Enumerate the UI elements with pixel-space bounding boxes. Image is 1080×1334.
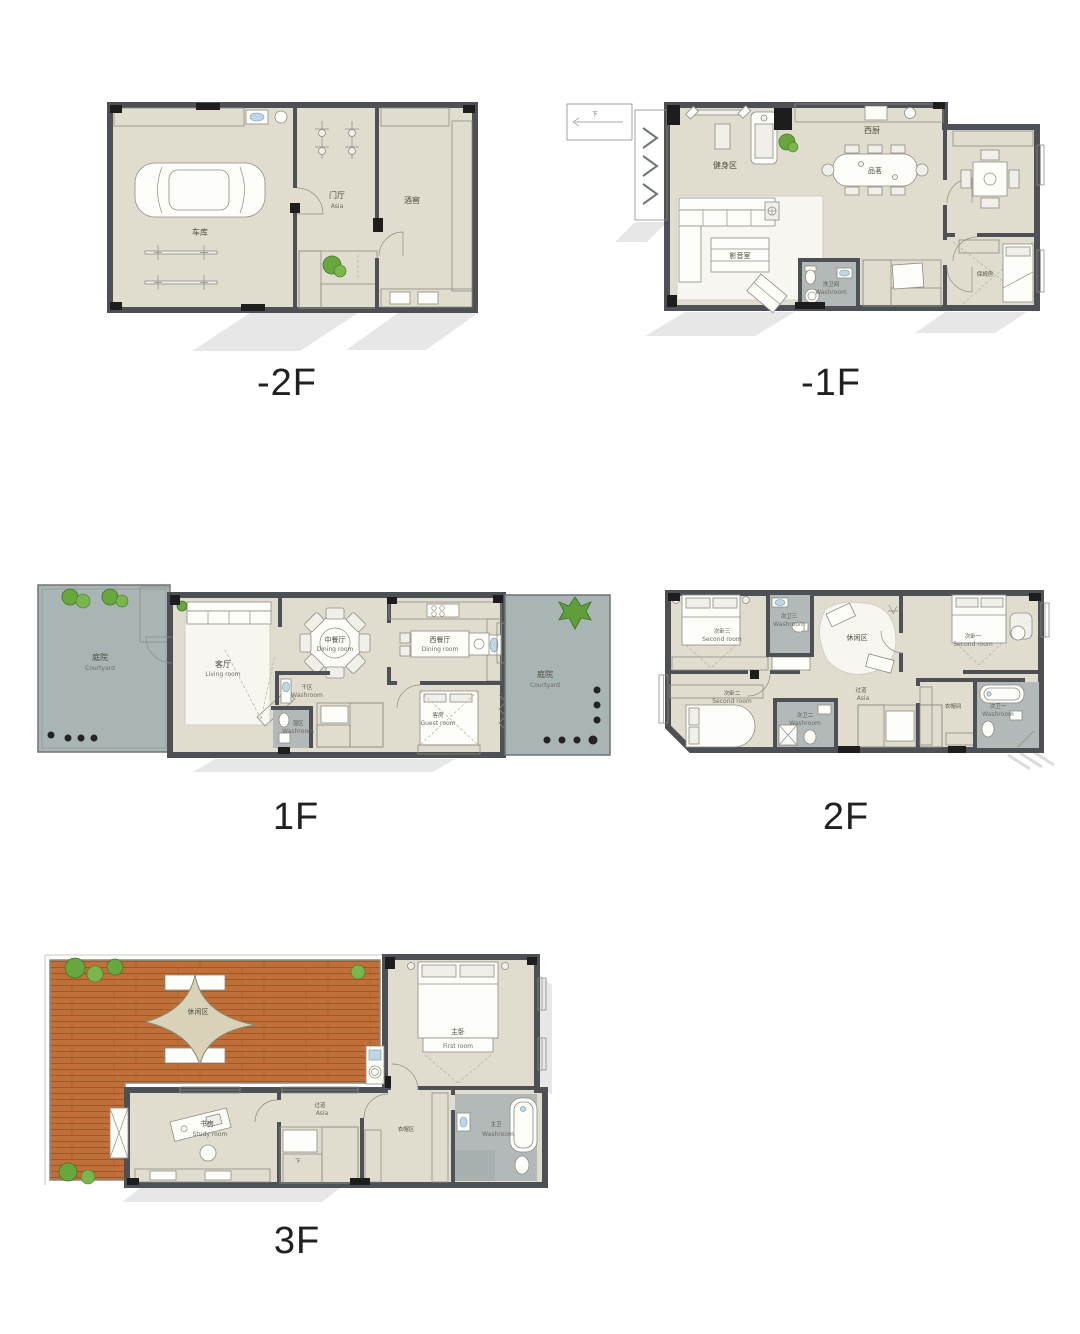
wine-cellar-label: 酒窖 xyxy=(404,195,420,205)
foyer-sublabel: Asia xyxy=(331,203,344,210)
wall-accent xyxy=(196,103,220,110)
toilet-icon xyxy=(982,721,994,737)
wall-accent xyxy=(385,957,395,969)
mbath-sublabel: Washroom xyxy=(482,1131,514,1138)
utility-sink-icon xyxy=(250,113,264,121)
bath2-sublabel: Washroom xyxy=(789,720,821,727)
interior-wall xyxy=(916,703,920,750)
plan-shadow xyxy=(615,222,667,242)
dining-cn-sublabel: Dining room xyxy=(317,646,354,653)
washroom-label: 洗卫间 xyxy=(823,280,840,288)
bed2-sublabel: Second room xyxy=(712,698,752,705)
stepping-stone xyxy=(91,735,98,742)
interior-wall xyxy=(947,233,955,237)
sofa-icon xyxy=(177,601,271,624)
wall-accent xyxy=(385,1076,391,1088)
plant-icon xyxy=(351,965,365,979)
wall-accent xyxy=(127,1178,139,1185)
terrace-label: 休闲区 xyxy=(188,1007,209,1016)
courtyard-right-sublabel: Courtyard xyxy=(530,682,560,689)
interior-wall xyxy=(977,233,1037,237)
wall-accent xyxy=(110,105,122,113)
bed3-label: 次卧三 xyxy=(714,627,731,635)
stepping-stone xyxy=(48,732,55,739)
toilet-icon xyxy=(805,266,816,284)
tea-label: 品茗 xyxy=(868,166,882,175)
desk-chair-icon xyxy=(1010,613,1032,640)
interior-wall xyxy=(375,105,379,218)
dry-washroom-label: 干区 xyxy=(301,684,313,691)
leisure-label: 休闲区 xyxy=(847,633,868,642)
bathtub-icon xyxy=(510,1098,537,1152)
interior-wall xyxy=(916,678,976,682)
interior-wall xyxy=(963,670,1041,674)
interior-wall xyxy=(360,1118,364,1183)
toilet-icon xyxy=(279,713,289,727)
floor-label-2f: 2F xyxy=(776,796,916,839)
stepping-stone xyxy=(574,737,581,744)
wall-accent xyxy=(527,957,537,965)
stepping-stone xyxy=(65,735,72,742)
foyer-label: 门厅 xyxy=(329,190,345,200)
toilet-icon xyxy=(515,1156,529,1174)
dining-w-sublabel: Dining room xyxy=(422,646,459,653)
stepping-stone xyxy=(594,702,601,709)
wall-accent xyxy=(463,105,475,113)
plan-shadow xyxy=(915,312,1027,333)
wall-accent xyxy=(110,302,122,310)
stepping-stone xyxy=(594,687,601,694)
treadmill-icon xyxy=(751,112,777,164)
floor-label-minus1: -1F xyxy=(761,362,901,405)
wall-accent xyxy=(1029,593,1041,601)
floor-label-3f: 3F xyxy=(227,1220,367,1263)
interior-wall xyxy=(293,213,297,310)
bed1-sublabel: Second room xyxy=(953,641,993,648)
interior-wall xyxy=(375,258,379,310)
wet-washroom-label: 湿区 xyxy=(292,719,304,727)
wall-accent xyxy=(668,593,680,601)
interior-wall xyxy=(773,698,838,702)
bath3-label: 次卫三 xyxy=(781,612,798,620)
car-icon xyxy=(135,163,265,217)
interior-wall xyxy=(943,127,947,180)
interior-wall xyxy=(418,1086,537,1090)
bath1-label: 次卫一 xyxy=(990,702,1007,710)
bed-icon xyxy=(1003,244,1033,302)
dining-cn-label: 中餐厅 xyxy=(325,635,346,644)
guest-room-label: 客房 xyxy=(432,711,444,719)
plan-shadow xyxy=(346,313,478,350)
hall-label: 过道 xyxy=(855,686,867,694)
interior-wall xyxy=(293,105,297,188)
interior-wall xyxy=(973,678,977,748)
nightstand-icon xyxy=(743,597,750,604)
shower-floor xyxy=(455,1150,495,1181)
courtyard-right-label: 庭院 xyxy=(537,669,553,679)
entry-ramp xyxy=(635,110,667,220)
interior-wall xyxy=(766,593,770,655)
dry-washroom-sublabel: Washroom xyxy=(291,692,323,699)
interior-wall xyxy=(943,265,947,308)
wall-accent xyxy=(278,747,290,754)
wall-accent xyxy=(350,1178,370,1185)
master-label: 主卧 xyxy=(451,1027,465,1036)
nanny-room-label: 保姆房 xyxy=(977,270,994,278)
cloak-label: 衣帽间 xyxy=(945,702,962,710)
living-label: 客厅 xyxy=(215,659,231,669)
stepping-stone xyxy=(589,736,598,745)
floor-plan-minus1: 下 健身区 西厨 品茗 xyxy=(565,90,1045,350)
bed1-label: 次卧一 xyxy=(965,632,982,640)
stepping-stone xyxy=(559,737,566,744)
chair-icon xyxy=(200,1145,216,1161)
stepping-stone xyxy=(594,717,601,724)
door-jamb xyxy=(290,203,300,213)
wall-accent xyxy=(387,597,397,604)
interior-wall xyxy=(899,593,903,633)
courtyard-left-sublabel: Courtyard xyxy=(85,665,115,672)
interior-wall xyxy=(973,678,1025,682)
living-sublabel: Living room xyxy=(205,671,240,678)
wall-accent xyxy=(493,595,503,603)
bath1-sublabel: Washroom xyxy=(982,711,1014,718)
tv-stand-icon xyxy=(765,202,779,220)
hall-label: 过道 xyxy=(314,1101,326,1109)
guest-room-sublabel: Guest room xyxy=(420,720,455,727)
wall-accent xyxy=(241,304,265,311)
master-sublabel: First room xyxy=(443,1043,473,1050)
bed2-label: 次卧二 xyxy=(724,689,741,697)
stair-down-label: 下 xyxy=(295,1158,301,1165)
wall-accent xyxy=(170,595,180,605)
wet-washroom-sublabel: Washroom xyxy=(282,728,314,735)
nightstand-icon xyxy=(408,963,415,970)
hall-sublabel: Asia xyxy=(316,1110,329,1117)
toilet-icon xyxy=(804,730,816,744)
interior-wall xyxy=(943,205,947,240)
sink-icon xyxy=(818,705,831,714)
floor-plan-1f: 庭院 Courtyard 客厅 Living room 中餐厅 Dining r… xyxy=(35,575,615,775)
stair-down-label: 下 xyxy=(592,111,598,118)
cloak-label: 衣帽区 xyxy=(398,1125,415,1133)
outdoor-counter xyxy=(366,1046,384,1084)
study-sublabel: Study room xyxy=(193,1131,228,1138)
stepping-stone xyxy=(78,735,85,742)
interior-wall xyxy=(278,597,282,627)
washroom-sublabel: Washroom xyxy=(815,289,847,296)
bathtub-icon xyxy=(980,685,1024,703)
stepping-stone xyxy=(544,737,551,744)
kitchen-tall-cabinet xyxy=(774,108,792,130)
kitchen-sink-icon xyxy=(905,108,916,119)
floor-label-minus2: -2F xyxy=(217,362,357,405)
interior-wall xyxy=(766,653,814,657)
bed3-sublabel: Second room xyxy=(702,636,742,643)
garage-label: 车库 xyxy=(192,227,208,237)
interior-wall xyxy=(451,1110,455,1183)
av-room-label: 影音室 xyxy=(730,251,751,260)
floor-plan-3f: 休闲区 主卧 First room 书房 Study ro xyxy=(40,950,560,1215)
hall-sublabel: Asia xyxy=(857,695,870,702)
wall-accent xyxy=(948,746,966,753)
bath3-sublabel: Washroom xyxy=(773,621,805,628)
study-label: 书房 xyxy=(200,1119,214,1128)
courtyard-right xyxy=(505,595,610,755)
door-jamb xyxy=(750,670,759,679)
interior-wall xyxy=(387,681,397,685)
wet-washroom xyxy=(271,706,313,748)
interior-wall xyxy=(277,1093,281,1100)
washer-icon xyxy=(369,1066,381,1078)
kitchen-label: 西厨 xyxy=(864,126,880,135)
sink-icon xyxy=(369,1050,381,1060)
dining-w-label: 西餐厅 xyxy=(430,635,451,644)
gym-label: 健身区 xyxy=(713,160,737,170)
interior-wall xyxy=(834,698,838,750)
interior-wall xyxy=(770,670,800,674)
door-jamb xyxy=(373,218,383,232)
interior-wall xyxy=(810,593,814,655)
wall-accent xyxy=(795,302,825,309)
bath2-label: 次卫二 xyxy=(797,711,814,719)
plan-shadow xyxy=(193,759,455,772)
plan-shadow xyxy=(192,313,358,351)
interior-wall xyxy=(899,653,903,672)
floor-plan-2f: 次卧三 Second room 次卫三 Washroom 休闲区 次卧一 Sec… xyxy=(658,575,1058,775)
interior-wall xyxy=(668,670,748,674)
interior-wall xyxy=(387,667,391,683)
courtyard-left-label: 庭院 xyxy=(92,652,108,662)
dining-island-icon xyxy=(400,631,489,657)
plan-shadow xyxy=(645,312,795,336)
mbath-label: 主卫 xyxy=(490,1120,502,1128)
wall-accent xyxy=(933,102,945,109)
floorplan-sheet: 车库 门厅 Asia 酒窖 xyxy=(0,0,1080,1334)
floor-plan-minus2: 车库 门厅 Asia 酒窖 xyxy=(100,93,485,355)
floor-label-1f: 1F xyxy=(226,796,366,839)
plan-shadow xyxy=(122,1188,340,1202)
nightstand-icon xyxy=(502,963,509,970)
wall-accent xyxy=(667,105,680,125)
exterior-stairs-icon xyxy=(567,104,632,140)
interior-wall xyxy=(451,1090,455,1095)
interior-wall xyxy=(773,698,777,750)
wall-accent xyxy=(667,295,677,307)
plan-shadow xyxy=(1008,751,1054,769)
round-fixture-icon xyxy=(275,111,287,123)
interior-wall xyxy=(420,681,503,685)
wall-accent xyxy=(838,746,860,753)
